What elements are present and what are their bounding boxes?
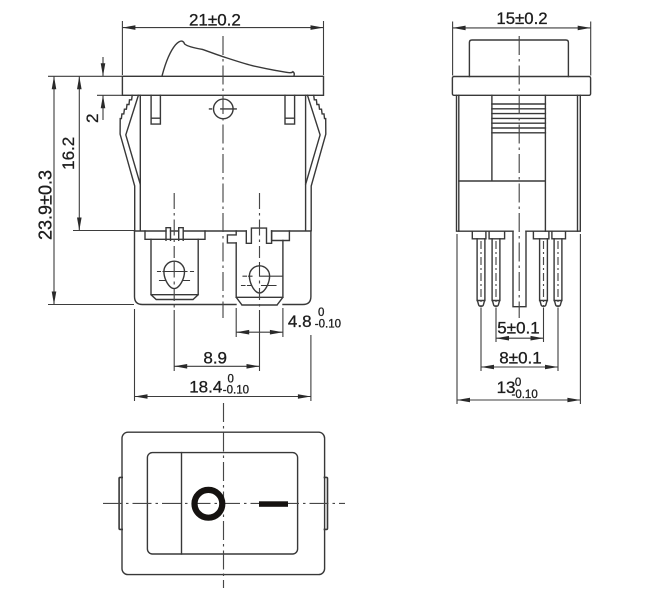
svg-text:-0.10: -0.10: [512, 389, 538, 401]
svg-text:5±0.1: 5±0.1: [497, 319, 539, 338]
svg-text:15±0.2: 15±0.2: [496, 9, 547, 28]
svg-text:0: 0: [515, 377, 521, 389]
svg-text:21±0.2: 21±0.2: [189, 10, 241, 29]
svg-text:4.8: 4.8: [288, 312, 312, 331]
svg-text:2: 2: [83, 114, 102, 123]
svg-text:8±0.1: 8±0.1: [499, 348, 541, 367]
svg-text:-0.10: -0.10: [315, 318, 341, 330]
svg-text:23.9±0.3: 23.9±0.3: [35, 170, 55, 240]
svg-text:8.9: 8.9: [203, 348, 227, 367]
svg-text:0: 0: [318, 307, 324, 319]
svg-text:-0.10: -0.10: [223, 384, 249, 396]
svg-text:18.4: 18.4: [189, 377, 222, 396]
svg-text:16.2: 16.2: [59, 137, 78, 170]
